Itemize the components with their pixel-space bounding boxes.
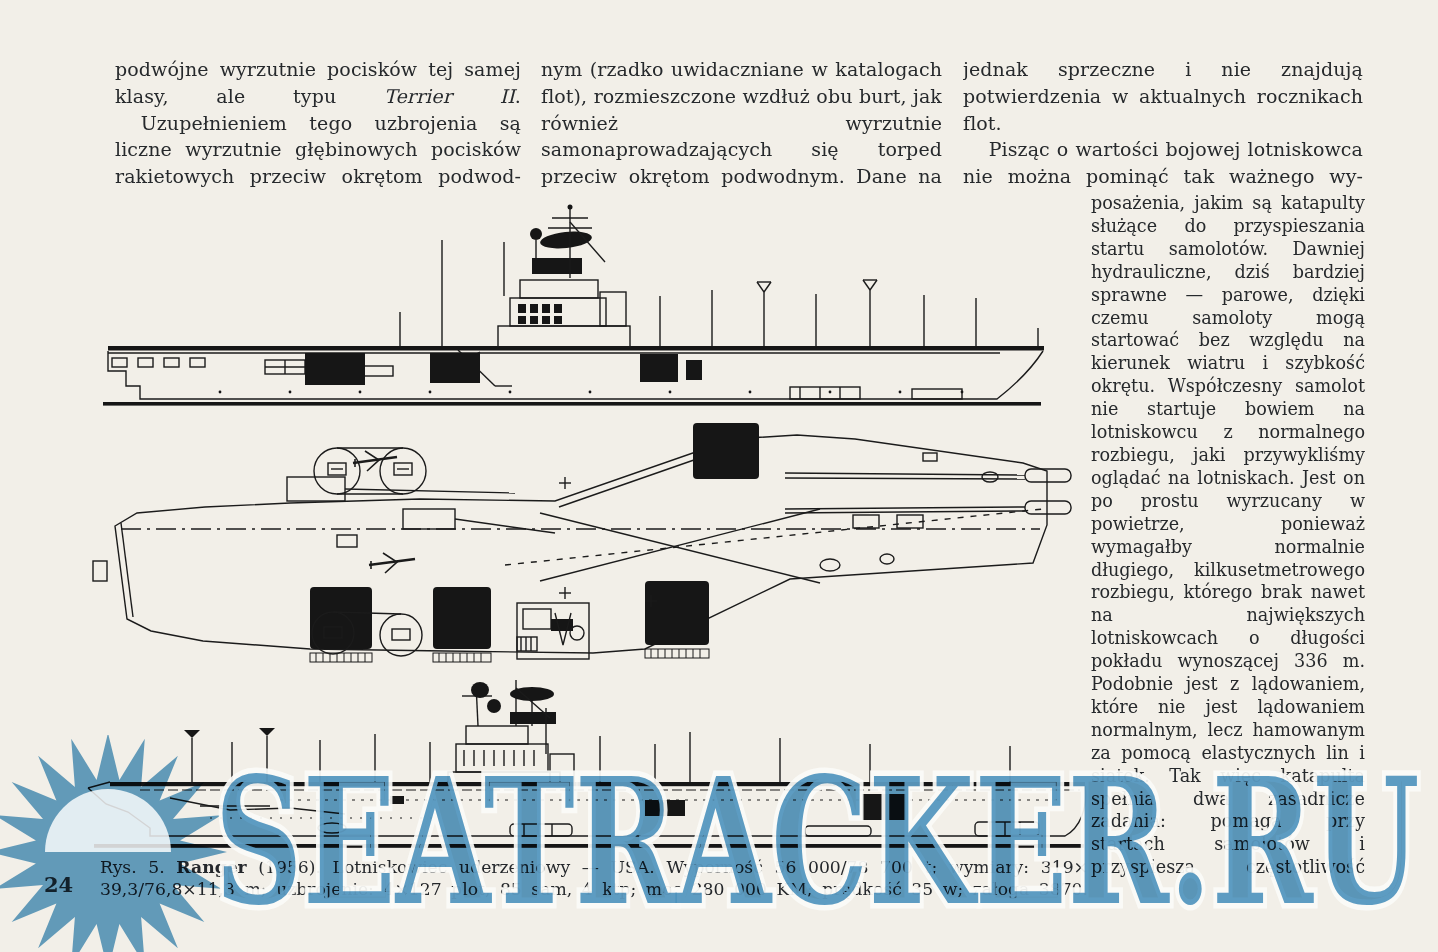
deck-antennas [400, 240, 1038, 346]
paragraph: Uzupełnieniem tego uzbrojenia są liczne … [115, 110, 521, 190]
hull-portholes [219, 391, 964, 394]
ship-side-profile-drawing [100, 200, 1080, 415]
deck-elevator [693, 423, 759, 479]
waterline [103, 402, 1041, 406]
island-superstructure [498, 205, 630, 348]
body-text: . [515, 85, 521, 107]
radar-dish [487, 699, 501, 713]
paragraph: jednak sprzeczne i nie znajdują potwierd… [963, 56, 1363, 136]
hangar-opening [640, 354, 678, 382]
deck-elevator [433, 587, 491, 649]
ship-class-name: Terrier II [384, 85, 515, 107]
figure-caption-line2: 39,3/76,8×11,3 m; uzbrojenie: 4×127 plot… [100, 879, 1088, 901]
paragraph: posażenia, jakim są katapulty służące do… [1091, 192, 1365, 879]
deck-datum-cross [559, 477, 657, 607]
flight-deck-edge [110, 782, 1085, 786]
catapult-prong [1025, 469, 1071, 482]
radar-antenna [532, 258, 582, 274]
hull-outline [88, 782, 1086, 836]
aircraft-silhouette [369, 553, 415, 573]
deck-elevator [645, 581, 709, 645]
radar-antenna [539, 229, 592, 250]
island-plan [517, 603, 589, 659]
figure-label: Rys. 5. [100, 857, 176, 877]
figure-caption-line1: Rys. 5. Ranger (1956). Lotniskowiec uder… [100, 857, 1088, 879]
scanned-book-page: { "page": { "number": "24", "paper_color… [0, 0, 1438, 952]
paragraph: podwójne wyrzutnie pocisków tej samej kl… [115, 56, 521, 110]
hangar-opening [305, 353, 365, 385]
deck-outline [115, 435, 1047, 653]
island-superstructure [448, 680, 574, 784]
text-column-2: nym (rzadko uwidaczniane w katalogach fl… [541, 56, 942, 196]
hull-outline [108, 351, 1043, 399]
page-number: 24 [44, 872, 73, 897]
angled-deck-line [505, 509, 1043, 565]
paragraph: nym (rzadko uwidaczniane w katalogach fl… [541, 56, 942, 196]
caption-text: (1956). Lotniskowiec uderzeniowy — USA. … [247, 857, 1088, 877]
radar-dish [530, 228, 542, 240]
text-column-1: podwójne wyrzutnie pocisków tej samej kl… [115, 56, 521, 196]
text-column-3-top: jednak sprzeczne i nie znajdują potwierd… [963, 56, 1363, 196]
text-column-3-narrow: posażenia, jakim są katapulty służące do… [1091, 192, 1365, 914]
paragraph: Pisząc o wartości bojowej lotniskowca ni… [963, 136, 1363, 190]
hangar-opening [430, 353, 480, 383]
hangar-opening [862, 794, 906, 820]
ship-name: Ranger [176, 857, 246, 877]
ship-waterline-profile-drawing [80, 678, 1090, 873]
catapult-prong [1025, 501, 1071, 514]
waterline [94, 844, 1084, 848]
figure-caption: Rys. 5. Ranger (1956). Lotniskowiec uder… [100, 857, 1088, 900]
ship-deck-plan-drawing [85, 413, 1075, 685]
deck-antennas [184, 728, 1010, 782]
